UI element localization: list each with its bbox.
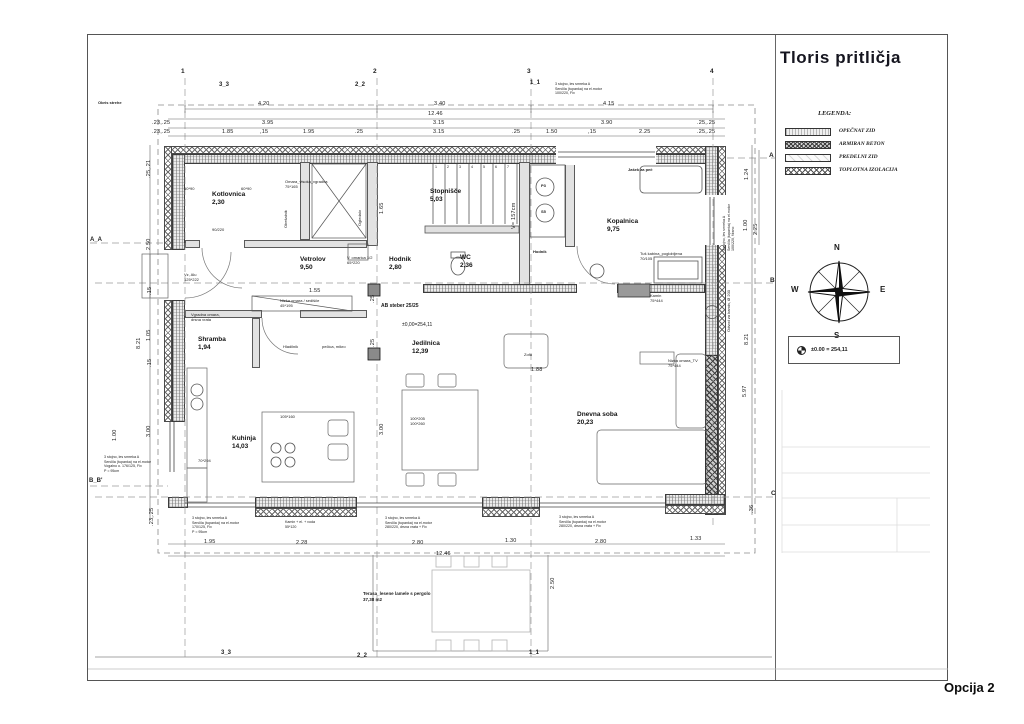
reinforced-concrete-swatch — [785, 141, 831, 149]
dimension-label: V= 157cm — [511, 202, 517, 229]
dimension-label: 1.05 — [146, 329, 152, 341]
room-label: Dnevna soba20,23 — [577, 411, 617, 427]
plan-note: Nizka omara / sedišče45*195 — [280, 298, 319, 308]
plan-note: Kamin + el. + voda55*120 — [285, 520, 315, 529]
plan-note: 60*90 — [241, 186, 251, 191]
legend-item-label: TOPLOTNA IZOLACIJA — [839, 167, 898, 173]
plan-note: Vgradna omara,drsna vrata — [191, 312, 220, 322]
legend-item-label: OPEČNAT ZID — [839, 128, 875, 134]
dimension-label: .23,.25 — [152, 129, 170, 135]
dimension-label: 1.24 — [744, 168, 750, 180]
stair-number: 3 — [459, 165, 461, 170]
legend-item-label: ARMIRAN BETON — [839, 141, 885, 147]
dimension-label: 1.00 — [112, 429, 118, 441]
plan-note: Obešalnik — [283, 210, 288, 228]
plan-note: 3 stojno, les smreka ASenčila (tupanka) … — [104, 455, 151, 474]
benchmark-icon — [797, 346, 806, 355]
dimension-label: ,15 — [260, 129, 268, 135]
dimension-label: 8.21 — [136, 337, 142, 349]
dimension-label: ,15 — [588, 129, 596, 135]
plan-note: S5 — [541, 209, 546, 214]
plan-note: 3 stojno, les smreka ASenčila (tupanka) … — [192, 516, 239, 535]
plan-note: Terasa_lesene lamele s pergolo37,38 m2 — [363, 591, 430, 603]
dimension-label: 3.90 — [601, 120, 613, 126]
dimension-label: 2.25 — [753, 223, 759, 235]
plan-note: Obris strehe — [98, 100, 122, 105]
dimension-label: 3.15 — [433, 129, 445, 135]
room-label: Kotlovnica2,30 — [212, 191, 245, 207]
stair-number: 7 — [507, 165, 509, 170]
compass-rose-icon — [800, 252, 878, 332]
grid-row-label: B — [770, 277, 775, 284]
plan-note: 100*205100*260 — [410, 416, 425, 426]
dimension-label: 1.00 — [743, 219, 749, 231]
dimension-label: 3.95 — [262, 120, 274, 126]
section-mark: 1_1 — [529, 650, 539, 656]
dimension-label: 2.80 — [595, 539, 607, 545]
section-mark: A_A — [90, 237, 102, 243]
legend-item-label: PREDELNI ZID — [839, 154, 878, 160]
dimension-label: 1.88 — [531, 367, 543, 373]
dimension-label: .25,.21 — [146, 160, 152, 178]
plan-note: ±0,00=254,11 — [402, 322, 432, 329]
dimension-label: 4.20 — [258, 101, 270, 107]
dimension-label: 1.85 — [222, 129, 234, 135]
compass-west-label: W — [791, 285, 799, 294]
dimension-label: 3.00 — [379, 423, 385, 435]
room-label: WC2,36 — [460, 254, 473, 270]
grid-column-label: 4 — [710, 68, 714, 75]
dimension-label: 1.95 — [303, 129, 315, 135]
section-mark: 3_3 — [219, 82, 229, 88]
dimension-label: 8.21 — [744, 333, 750, 345]
plan-note: Odvod za kamin, Ø 200 — [726, 290, 731, 332]
dimension-label: .25 — [370, 339, 376, 347]
section-mark: B_B' — [89, 478, 102, 484]
dimension-label: .36 — [749, 505, 755, 513]
stair-number: 5 — [483, 165, 485, 170]
dimension-label: 12.46 — [436, 551, 451, 557]
plan-note: V. omarica 1/265*220 — [347, 255, 372, 265]
plan-note: Hladilnik — [283, 344, 298, 349]
plan-note: Tuš kabina_poglobljena70/105 — [640, 251, 682, 261]
plan-note: 3 stojno, les smreka ASenčila (tupanka) … — [559, 515, 606, 529]
drawing-sheet: Kotlovnica2,30Stopnišče5,03Kopalnica9,75… — [0, 0, 1024, 724]
plan-note: 105*160 — [280, 414, 295, 419]
section-mark: 3_3 — [221, 650, 231, 656]
dimension-label: 4.15 — [603, 101, 615, 107]
plan-note: Nizka omara_TV75*444 — [668, 358, 698, 368]
dimension-label: 2.50 — [146, 238, 152, 250]
room-label: Kuhinja14,03 — [232, 435, 256, 451]
dimension-label: .25 — [370, 295, 376, 303]
plan-note: 70*294 — [198, 458, 211, 463]
option-label: Opcija 2 — [944, 680, 995, 695]
legend-heading: LEGENDA: — [818, 110, 851, 117]
dimension-label: 3.00 — [146, 425, 152, 437]
compass-east-label: E — [880, 285, 885, 294]
plan-note: Omara_visoka_vgradna75*165 — [285, 179, 327, 189]
dimension-label: 1.33 — [690, 536, 702, 542]
dimension-label: 1.65 — [379, 202, 385, 214]
dimension-label: .25 — [355, 129, 363, 135]
dimension-label: 1.30 — [505, 538, 517, 544]
plan-note: 90/220 — [212, 227, 224, 232]
plan-note: Vz, Alu125*222 — [184, 272, 199, 282]
dimension-label: 2.25 — [639, 129, 651, 135]
dimension-label: .23,.25 — [149, 508, 155, 526]
dimension-label: 2.80 — [412, 540, 424, 546]
brick-wall-swatch — [785, 128, 831, 136]
plan-note: Zofa — [524, 352, 532, 357]
section-mark: 1_1 — [530, 80, 540, 86]
dimension-label: .23,.25 — [152, 120, 170, 126]
plan-note: 60*90 — [184, 186, 194, 191]
plan-note: 3 stojno, les smreka ASenčila (tupanka) … — [722, 204, 736, 251]
stair-number: 2 — [447, 165, 449, 170]
room-label: Vetrolov9,50 — [300, 256, 326, 272]
section-mark: 2_2 — [355, 82, 365, 88]
grid-column-label: 1 — [181, 68, 185, 75]
grid-column-label: 2 — [373, 68, 377, 75]
plan-note: Ogledalo — [357, 210, 362, 226]
dimension-label: .15 — [147, 287, 153, 295]
dimension-label: .25,.25 — [697, 129, 715, 135]
dimension-label: 3.15 — [433, 120, 445, 126]
plan-note: Kamin75*444 — [650, 293, 663, 303]
compass-north-label: N — [834, 243, 840, 252]
dimension-label: 3.40 — [434, 101, 446, 107]
plan-note: pečica, mikro — [322, 344, 346, 349]
partition-wall-swatch — [785, 154, 831, 162]
room-label: Shramba1,94 — [198, 336, 226, 352]
section-mark: 2_2 — [357, 653, 367, 659]
dimension-label: .15 — [147, 359, 153, 367]
plan-note: Jašek za peč — [628, 167, 652, 172]
plan-note: P3 — [541, 183, 546, 188]
elevation-datum-box: ±0.00 = 254,11 — [788, 336, 900, 364]
dimension-label: 1.55 — [309, 288, 321, 294]
dimension-label: 5.97 — [742, 385, 748, 397]
thermal-insulation-swatch — [785, 167, 831, 175]
stair-number: 4 — [471, 165, 473, 170]
dimension-label: 12.46 — [428, 111, 443, 117]
dimension-label: 2.50 — [550, 577, 556, 589]
plan-note: 3 stojno, les smreka ASenčila (tupanka) … — [385, 516, 432, 530]
plan-note: AB steber 25/25 — [381, 303, 419, 310]
grid-column-label: 3 — [527, 68, 531, 75]
room-label: Jedilnica12,39 — [412, 340, 440, 356]
room-label: Stopnišče5,03 — [430, 188, 461, 204]
elevation-datum-text: ±0.00 = 254,11 — [811, 347, 848, 353]
dimension-label: .25 — [512, 129, 520, 135]
dimension-label: 2.28 — [296, 540, 308, 546]
room-label: Kopalnica9,75 — [607, 218, 638, 234]
dimension-label: 1.50 — [546, 129, 558, 135]
stair-number: 1 — [435, 165, 437, 170]
stair-number: 6 — [495, 165, 497, 170]
dimension-label: .25,.25 — [697, 120, 715, 126]
grid-row-label: C — [771, 490, 776, 497]
room-label: Hodnik2,80 — [389, 256, 411, 272]
plan-note: Hodnik — [533, 249, 547, 254]
drawing-title: Tloris pritličja — [780, 48, 901, 68]
dimension-label: 1.95 — [204, 539, 216, 545]
grid-row-label: A — [769, 152, 774, 159]
plan-note: 3 stojno, les smreka ASenčila (tupanka) … — [555, 82, 602, 96]
